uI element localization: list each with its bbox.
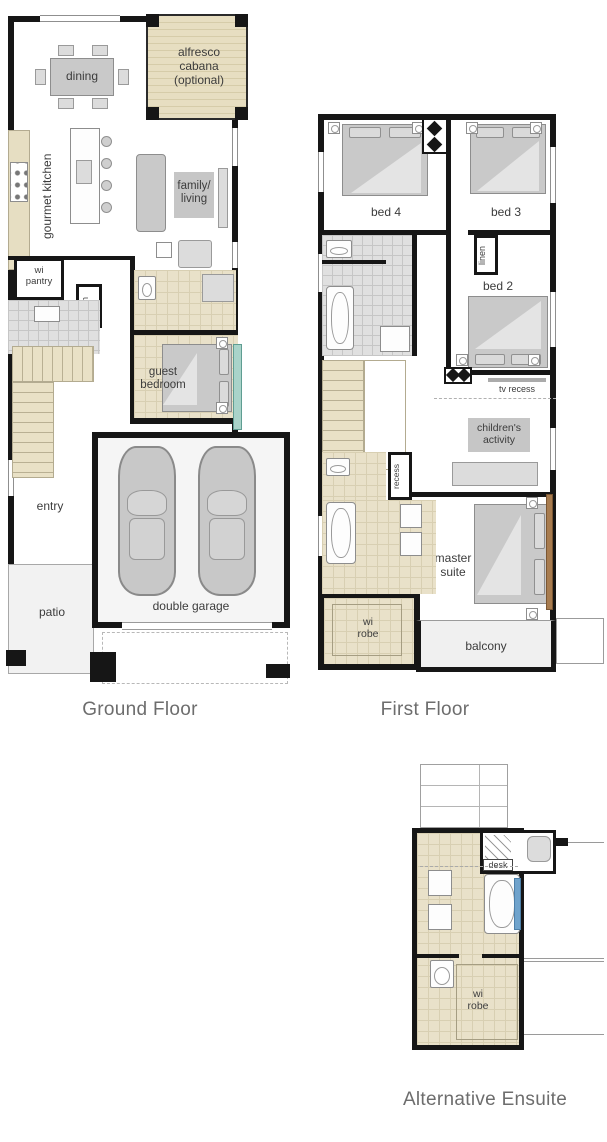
toilet [430, 960, 454, 988]
post [146, 107, 159, 120]
toilet [326, 240, 352, 258]
wall [412, 235, 417, 356]
vanity-basin [400, 504, 422, 528]
tv-recess-label: tv recess [484, 384, 550, 394]
island-sink [76, 160, 92, 184]
light-symbol [216, 337, 228, 349]
entry-label: entry [20, 500, 80, 514]
chair [58, 98, 74, 109]
vanity-basin [400, 532, 422, 556]
laundry-sink [34, 306, 60, 322]
window [232, 242, 238, 268]
linen-label: linen [477, 239, 495, 271]
chair [92, 98, 108, 109]
bathtub [326, 286, 354, 350]
stool [101, 202, 112, 213]
bed-fold [475, 301, 541, 349]
kitchen-label: gourmet kitchen [40, 118, 58, 274]
first-floor-caption: First Floor [330, 699, 520, 721]
desk-chair [527, 836, 551, 862]
door-line [420, 866, 518, 867]
desk-nook: desk [480, 830, 556, 874]
vanity-basin [428, 870, 452, 896]
shower [202, 274, 234, 302]
wall [417, 954, 459, 958]
car-roof [129, 518, 165, 560]
car [198, 446, 256, 596]
bathtub [326, 502, 356, 564]
patio-label: patio [22, 606, 82, 620]
toilet [326, 458, 350, 476]
stool [101, 180, 112, 191]
ground-floor-plan: alfresco cabana (optional) dining gourme… [6, 14, 298, 694]
bed-fold [477, 515, 521, 595]
armchair [178, 240, 212, 268]
balcony-label: balcony [426, 640, 546, 654]
window [550, 292, 556, 347]
bed3-label: bed 3 [466, 206, 546, 220]
tv-recess-line [434, 398, 556, 399]
bench-seat [452, 462, 538, 486]
light-symbol [456, 354, 468, 366]
ground-floor-caption: Ground Floor [30, 699, 250, 721]
duct-diamond [427, 121, 443, 137]
vanity-basin [428, 904, 452, 930]
tv-unit [218, 168, 228, 228]
post [235, 14, 248, 27]
side-table [156, 242, 172, 258]
garage-door [122, 622, 272, 630]
post [6, 650, 26, 666]
car-roof [209, 518, 245, 560]
wall [130, 418, 238, 424]
window [550, 428, 556, 470]
stool [101, 136, 112, 147]
vanity [380, 326, 410, 352]
stairs-upper [12, 346, 94, 382]
wi-robe-label: wi robe [340, 616, 396, 640]
duct-diamond [457, 368, 471, 382]
driveway [102, 632, 288, 684]
dining-label: dining [50, 70, 114, 84]
bed2-label: bed 2 [458, 280, 538, 294]
timber-screen [546, 494, 553, 610]
first-floor-plan: bed 4 bed 3 linen bed 2 [316, 112, 607, 684]
floorplan-sheet: alfresco cabana (optional) dining gourme… [0, 0, 607, 1142]
wi-robe-label: wi robe [450, 988, 506, 1012]
stairs-lower [12, 382, 54, 478]
blue-window [514, 878, 521, 930]
stair-fragment [420, 764, 508, 828]
post [235, 107, 248, 120]
tv-shelf [488, 378, 546, 382]
window [550, 147, 556, 203]
window [318, 152, 324, 192]
chair [35, 69, 46, 85]
bed4-bed [342, 124, 428, 196]
master-bed [474, 504, 548, 604]
alfresco-cabana: alfresco cabana (optional) [146, 14, 248, 120]
duct-symbol [422, 118, 448, 154]
car-windshield [127, 490, 167, 516]
bed3-bed [470, 124, 546, 194]
aqua-window [233, 344, 242, 430]
post [90, 652, 116, 682]
sofa [136, 154, 166, 232]
car-windshield [207, 490, 247, 516]
pillow [476, 127, 504, 138]
bed4-label: bed 4 [346, 206, 426, 220]
light-symbol [530, 122, 542, 134]
pillow [219, 349, 229, 375]
balcony-extension [556, 618, 604, 664]
chair [118, 69, 129, 85]
childrens-activity-label: children's activity [456, 422, 542, 446]
garage-label: double garage [126, 600, 256, 614]
pillow [349, 127, 381, 138]
light-symbol [526, 497, 538, 509]
light-symbol [528, 354, 540, 366]
guest-label: guest bedroom [132, 366, 194, 392]
alternative-ensuite-plan: desk wi robe [408, 762, 607, 1062]
chair [92, 45, 108, 56]
duct-diamond [427, 137, 443, 153]
pillow [534, 513, 545, 549]
bed-fold [351, 143, 421, 193]
toilet [138, 276, 156, 300]
light-symbol [216, 402, 228, 414]
stool [101, 158, 112, 169]
pillow [534, 559, 545, 595]
ref-line [524, 1034, 604, 1035]
ref-line [524, 958, 604, 962]
duct-symbol [444, 367, 472, 384]
wall [322, 260, 386, 264]
post [146, 14, 159, 27]
chair [58, 45, 74, 56]
car [118, 446, 176, 596]
post [266, 664, 290, 678]
wall-stub [556, 838, 568, 846]
wi-pantry-label: wi pantry [16, 266, 62, 288]
alfresco-label: alfresco cabana (optional) [156, 46, 242, 87]
light-symbol [328, 122, 340, 134]
pillow [475, 354, 505, 365]
light-symbol [526, 608, 538, 620]
alternative-ensuite-caption: Alternative Ensuite [380, 1089, 590, 1111]
window [232, 128, 238, 166]
window [40, 15, 120, 22]
light-symbol [466, 122, 478, 134]
cooktop [10, 162, 28, 202]
wall [446, 235, 451, 375]
wall [446, 118, 451, 232]
recess-label: recess [391, 456, 409, 496]
bed-fold [477, 141, 539, 191]
wall [482, 954, 520, 958]
